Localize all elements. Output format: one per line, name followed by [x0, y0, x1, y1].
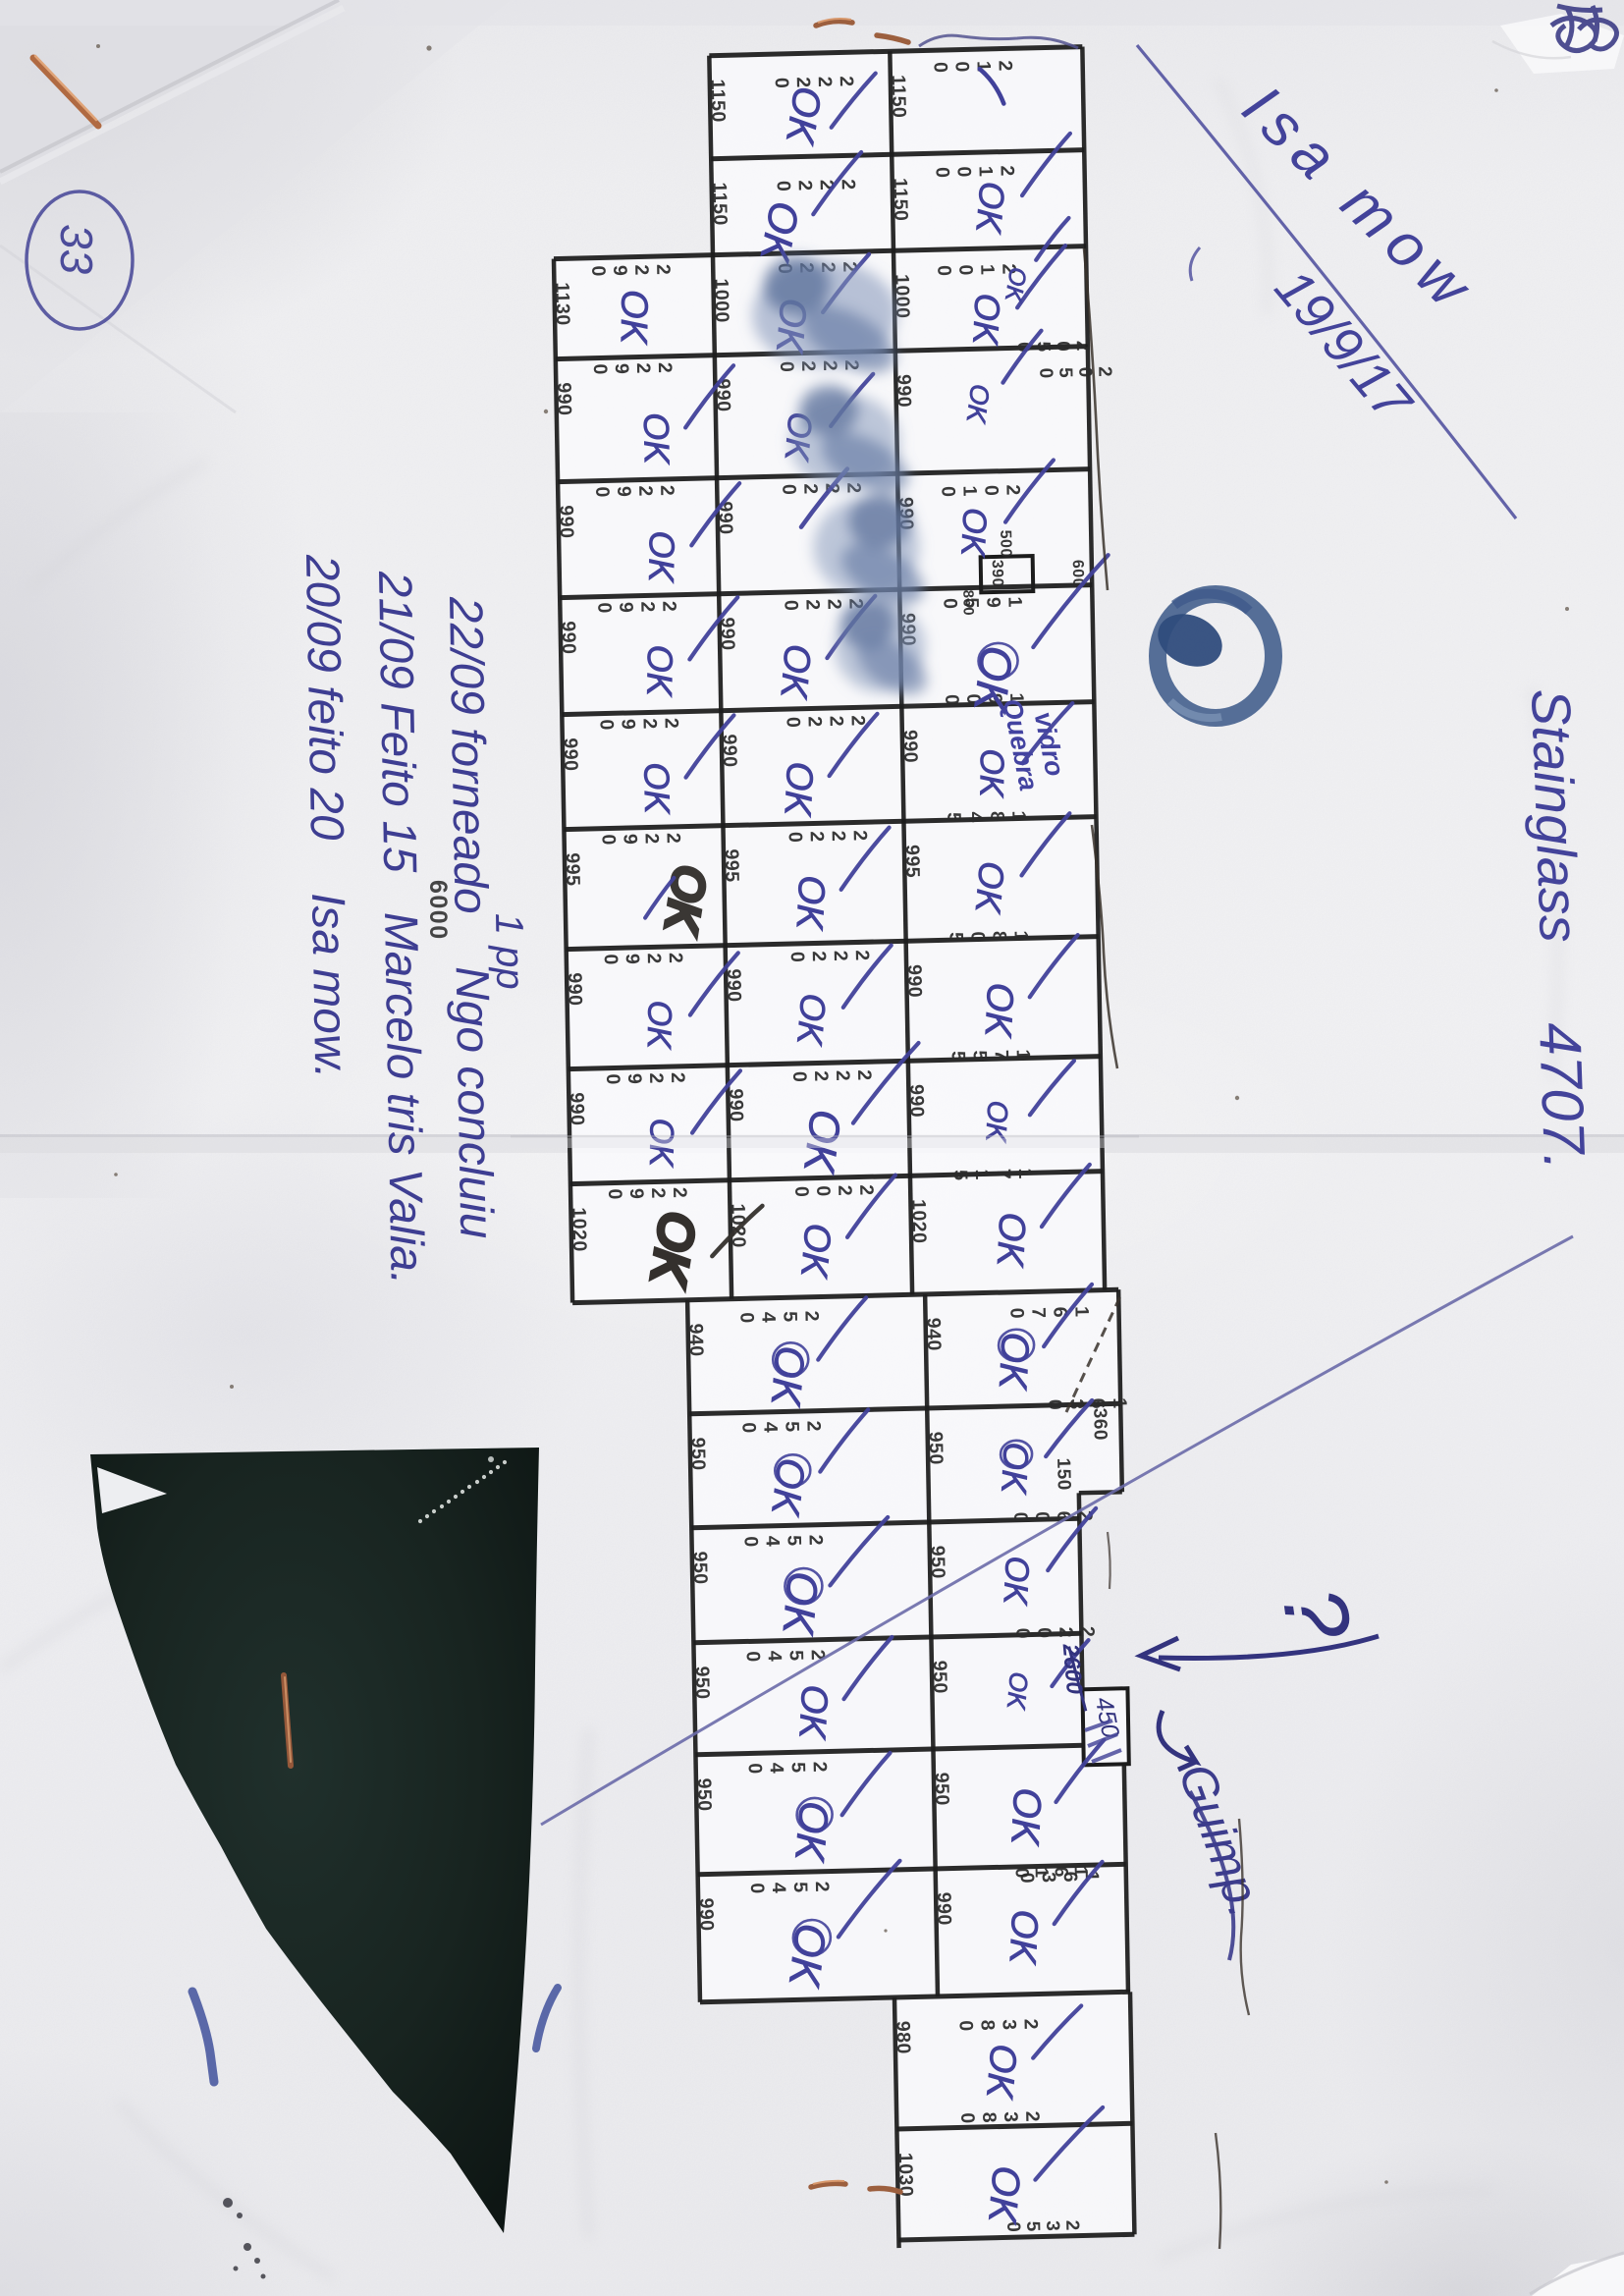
svg-text:0: 0	[956, 2112, 978, 2124]
svg-text:1: 1	[1109, 1397, 1130, 1409]
svg-text:5: 5	[1022, 2220, 1043, 2232]
svg-text:Stainglass: Stainglass	[1520, 687, 1591, 943]
svg-text:990: 990	[893, 374, 915, 409]
svg-text:2: 2	[855, 1184, 877, 1196]
svg-text:990: 990	[695, 1897, 718, 1932]
svg-text:OK: OK	[641, 530, 682, 583]
svg-text:1000: 1000	[710, 278, 732, 323]
svg-text:990: 990	[712, 378, 734, 412]
svg-text:1: 1	[1012, 1049, 1034, 1061]
svg-text:950: 950	[927, 1546, 949, 1580]
svg-text:0: 0	[954, 2020, 976, 2032]
svg-text:1: 1	[1070, 1866, 1091, 1878]
svg-text:0: 0	[773, 181, 794, 192]
svg-text:2: 2	[853, 1069, 875, 1081]
svg-text:0: 0	[930, 62, 951, 74]
svg-text:990: 990	[717, 617, 739, 651]
svg-text:5: 5	[779, 1311, 800, 1323]
svg-text:5: 5	[1055, 367, 1075, 379]
svg-text:9: 9	[615, 602, 636, 614]
svg-text:2: 2	[1001, 484, 1023, 496]
svg-text:3: 3	[1000, 2111, 1021, 2123]
svg-text:OK: OK	[792, 1222, 839, 1281]
svg-text:5: 5	[943, 812, 964, 824]
svg-text:0: 0	[1031, 1511, 1053, 1523]
svg-text:995: 995	[901, 845, 924, 879]
svg-text:2: 2	[802, 1420, 824, 1432]
svg-text:950: 950	[925, 1432, 947, 1466]
svg-text:3: 3	[998, 2019, 1019, 2031]
svg-text:1150: 1150	[888, 75, 910, 119]
svg-text:2: 2	[801, 599, 823, 611]
svg-text:8: 8	[976, 2020, 998, 2032]
svg-text:990: 990	[564, 972, 586, 1007]
svg-text:2: 2	[794, 180, 816, 191]
svg-text:2: 2	[663, 833, 684, 845]
svg-text:20/09 feito 20 Isa mow.: 20/09 feito 20 Isa mow.	[296, 553, 356, 1078]
svg-text:OK: OK	[640, 1001, 678, 1051]
svg-text:4: 4	[759, 1422, 781, 1434]
svg-text:OK: OK	[1001, 1671, 1034, 1713]
svg-text:2: 2	[995, 60, 1016, 72]
svg-text:0: 0	[931, 167, 952, 179]
svg-text:2: 2	[654, 362, 676, 374]
svg-text:0: 0	[744, 1763, 766, 1775]
svg-text:OK: OK	[636, 762, 677, 816]
svg-text:0: 0	[786, 952, 808, 963]
svg-text:OK: OK	[656, 862, 717, 937]
svg-text:0: 0	[812, 1185, 834, 1197]
svg-text:OK: OK	[787, 874, 832, 931]
svg-text:5: 5	[789, 1882, 811, 1893]
svg-text:OK: OK	[640, 1209, 706, 1289]
svg-text:7: 7	[991, 1050, 1012, 1061]
svg-text:0: 0	[587, 265, 609, 277]
svg-text:5: 5	[783, 1535, 804, 1547]
svg-text:1150: 1150	[709, 182, 731, 226]
svg-text:OK: OK	[636, 412, 677, 466]
svg-text:0: 0	[1009, 1511, 1031, 1523]
svg-text:3: 3	[1042, 2220, 1062, 2231]
svg-text:4: 4	[964, 811, 986, 823]
svg-text:0: 0	[1033, 1627, 1055, 1639]
svg-text:2: 2	[838, 179, 859, 191]
svg-text:OK: OK	[1002, 1787, 1049, 1848]
svg-text:150: 150	[1053, 1457, 1074, 1491]
svg-text:OK: OK	[996, 1556, 1036, 1607]
svg-text:2: 2	[638, 718, 660, 730]
svg-text:9: 9	[611, 363, 632, 375]
svg-text:8: 8	[978, 2112, 1000, 2124]
svg-text:990: 990	[715, 501, 737, 535]
svg-text:OK: OK	[776, 761, 820, 818]
svg-text:0: 0	[1044, 1399, 1065, 1411]
svg-text:33: 33	[51, 224, 102, 275]
svg-text:OK: OK	[790, 1684, 835, 1741]
svg-text:OK: OK	[968, 180, 1013, 236]
svg-text:0: 0	[785, 832, 806, 844]
svg-text:2: 2	[652, 264, 674, 276]
svg-text:2: 2	[814, 77, 836, 88]
svg-text:950: 950	[689, 1551, 712, 1585]
svg-text:2: 2	[832, 1070, 853, 1082]
svg-text:995: 995	[721, 848, 743, 883]
svg-text:2: 2	[636, 601, 658, 613]
svg-text:990: 990	[725, 1088, 747, 1122]
svg-text:0: 0	[780, 600, 801, 612]
svg-text:9: 9	[620, 834, 641, 846]
svg-text:4: 4	[757, 1312, 779, 1324]
svg-text:OK: OK	[977, 982, 1021, 1039]
svg-text:OK: OK	[1000, 266, 1031, 304]
svg-text:OK: OK	[613, 290, 655, 346]
svg-text:940: 940	[923, 1318, 946, 1352]
svg-text:1150: 1150	[707, 79, 730, 123]
svg-text:2600: 2600	[1058, 1642, 1088, 1696]
svg-text:2: 2	[808, 951, 830, 962]
svg-text:0: 0	[595, 719, 617, 731]
svg-text:990: 990	[723, 968, 745, 1003]
svg-text:0: 0	[739, 1536, 761, 1548]
svg-text:950: 950	[931, 1773, 953, 1807]
svg-text:980: 980	[892, 2021, 914, 2055]
svg-text:2: 2	[834, 1185, 855, 1197]
svg-text:2: 2	[799, 483, 821, 495]
svg-text:1: 1	[1003, 596, 1025, 608]
svg-text:1: 1	[971, 1169, 993, 1180]
svg-text:2: 2	[1061, 2220, 1082, 2231]
svg-text:950: 950	[687, 1437, 710, 1471]
svg-text:0: 0	[598, 834, 620, 846]
svg-text:OK: OK	[778, 83, 830, 148]
svg-text:2: 2	[667, 1072, 688, 1084]
svg-text:2: 2	[643, 953, 665, 964]
svg-text:990: 990	[903, 964, 926, 999]
svg-text:5: 5	[785, 1650, 807, 1662]
svg-text:1: 1	[974, 166, 996, 178]
svg-text:2: 2	[656, 485, 677, 497]
svg-text:2: 2	[1055, 1626, 1076, 1638]
svg-text:990: 990	[558, 621, 580, 655]
svg-text:0: 0	[954, 264, 976, 276]
svg-text:9: 9	[622, 954, 643, 965]
svg-text:OK: OK	[639, 644, 680, 697]
svg-text:0: 0	[602, 1073, 623, 1085]
svg-text:390: 390	[989, 560, 1006, 588]
svg-text:0: 0	[776, 361, 797, 373]
svg-text:OK: OK	[763, 1456, 813, 1520]
svg-text:4707.: 4707.	[1527, 1021, 1597, 1171]
svg-text:2: 2	[823, 599, 844, 611]
svg-text:2: 2	[632, 362, 654, 374]
svg-text:2: 2	[806, 831, 828, 843]
svg-text:4: 4	[768, 1883, 789, 1894]
svg-text:0: 0	[1053, 341, 1073, 352]
svg-text:2: 2	[641, 833, 663, 845]
svg-text:2: 2	[1019, 2018, 1041, 2030]
svg-text:0: 0	[593, 602, 615, 614]
svg-text:1020: 1020	[907, 1199, 930, 1244]
svg-text:2: 2	[660, 718, 681, 730]
svg-text:9: 9	[625, 1188, 647, 1200]
svg-text:9: 9	[982, 597, 1003, 609]
svg-text:2: 2	[645, 1072, 667, 1084]
svg-text:0: 0	[1011, 1868, 1032, 1879]
svg-text:2: 2	[665, 953, 686, 964]
svg-text:0: 0	[591, 486, 613, 498]
svg-text:OK: OK	[953, 507, 994, 558]
svg-text:OK: OK	[978, 2043, 1024, 2102]
svg-text:2: 2	[811, 1881, 833, 1892]
svg-text:OK: OK	[789, 992, 835, 1048]
svg-text:4: 4	[761, 1536, 783, 1548]
svg-text:1020: 1020	[568, 1207, 590, 1252]
svg-text:0: 0	[782, 717, 803, 729]
svg-text:6: 6	[1051, 1867, 1071, 1878]
svg-text:9: 9	[613, 486, 634, 498]
svg-text:OK: OK	[772, 642, 818, 701]
svg-text:0: 0	[951, 61, 973, 73]
svg-text:9: 9	[623, 1073, 645, 1085]
svg-text:860: 860	[959, 589, 976, 616]
svg-text:0: 0	[937, 486, 958, 498]
svg-text:OK: OK	[961, 383, 996, 425]
svg-text:0: 0	[966, 931, 988, 943]
svg-text:2: 2	[658, 601, 679, 613]
svg-text:1: 1	[1014, 1168, 1036, 1179]
svg-text:9: 9	[609, 265, 630, 277]
svg-text:995: 995	[562, 852, 584, 887]
svg-text:360: 360	[1089, 1408, 1110, 1442]
svg-text:0: 0	[737, 1422, 759, 1434]
svg-text:0: 0	[941, 694, 962, 706]
svg-text:5: 5	[947, 1051, 969, 1063]
svg-text:OK: OK	[972, 748, 1010, 798]
svg-text:1: 1	[958, 485, 980, 497]
svg-text:2: 2	[1072, 340, 1093, 351]
svg-text:2: 2	[849, 830, 871, 842]
svg-text:990: 990	[899, 730, 922, 764]
svg-text:2: 2	[630, 264, 652, 276]
svg-text:7: 7	[993, 1169, 1014, 1179]
svg-text:1: 1	[976, 264, 998, 276]
svg-text:2: 2	[1076, 1626, 1098, 1638]
svg-text:0: 0	[735, 1312, 757, 1324]
svg-text:0: 0	[742, 1651, 764, 1663]
svg-text:4: 4	[766, 1763, 787, 1775]
svg-text:5: 5	[969, 1050, 991, 1062]
svg-text:0: 0	[939, 598, 960, 610]
svg-text:2: 2	[804, 1534, 826, 1546]
svg-text:2: 2	[836, 76, 857, 87]
svg-text:5: 5	[945, 932, 966, 944]
svg-text:0: 0	[788, 1071, 810, 1083]
svg-text:2: 2	[1021, 2110, 1043, 2122]
svg-text:990: 990	[566, 1092, 588, 1126]
svg-text:0: 0	[952, 166, 974, 178]
svg-text:1: 1	[1009, 930, 1031, 942]
svg-text:0: 0	[1035, 367, 1056, 378]
svg-text:990: 990	[560, 738, 582, 772]
svg-text:7: 7	[1027, 1307, 1049, 1318]
svg-text:0: 0	[604, 1188, 625, 1200]
svg-text:2: 2	[851, 950, 873, 961]
svg-text:950: 950	[693, 1777, 716, 1812]
svg-text:2: 2	[996, 165, 1017, 177]
svg-text:500: 500	[997, 529, 1014, 558]
svg-text:2: 2	[800, 1310, 822, 1322]
svg-text:1 pp: 1 pp	[487, 912, 531, 990]
svg-text:2: 2	[669, 1187, 690, 1199]
svg-text:2: 2	[647, 1187, 669, 1199]
svg-text:2: 2	[825, 716, 846, 728]
svg-text:0: 0	[1005, 1307, 1027, 1319]
svg-text:990: 990	[719, 734, 741, 768]
svg-text:OK: OK	[989, 1212, 1033, 1269]
svg-text:940: 940	[685, 1323, 708, 1357]
svg-text:950: 950	[691, 1666, 714, 1700]
svg-text:1: 1	[1007, 810, 1029, 822]
svg-text:4: 4	[764, 1651, 785, 1663]
svg-text:2: 2	[803, 716, 825, 728]
svg-text:0: 0	[589, 363, 611, 375]
svg-text:5: 5	[1033, 341, 1054, 353]
svg-text:990: 990	[933, 1892, 955, 1927]
svg-text:1150: 1150	[890, 178, 912, 222]
svg-text:0: 0	[746, 1883, 768, 1894]
svg-text:0: 0	[933, 265, 954, 277]
svg-text:0: 0	[790, 1186, 812, 1198]
svg-text:OK: OK	[965, 293, 1008, 348]
svg-text:990: 990	[553, 382, 575, 416]
svg-text:OK: OK	[980, 2164, 1028, 2226]
svg-text:950: 950	[929, 1661, 951, 1695]
svg-text:5: 5	[787, 1762, 809, 1774]
svg-text:8: 8	[986, 811, 1007, 823]
svg-text:9: 9	[617, 719, 638, 731]
svg-text:0: 0	[600, 954, 622, 965]
svg-text:5: 5	[949, 1170, 971, 1181]
svg-text:0: 0	[778, 484, 799, 496]
svg-text:OK: OK	[1001, 1909, 1046, 1966]
svg-text:2: 2	[828, 831, 849, 843]
svg-text:0: 0	[1011, 1627, 1033, 1639]
svg-text:1: 1	[1031, 1867, 1052, 1879]
svg-text:2: 2	[1094, 366, 1114, 377]
svg-text:OK: OK	[968, 860, 1013, 916]
svg-text:2: 2	[810, 1070, 832, 1082]
svg-text:2: 2	[830, 951, 851, 962]
svg-text:8: 8	[988, 931, 1009, 943]
svg-text:0: 0	[980, 485, 1001, 497]
svg-text:5: 5	[781, 1421, 802, 1433]
svg-text:6000: 6000	[424, 880, 452, 941]
svg-text:2: 2	[634, 485, 656, 497]
svg-text:990: 990	[905, 1084, 928, 1119]
svg-text:1130: 1130	[551, 282, 573, 326]
svg-text:990: 990	[556, 505, 578, 539]
svg-text:2: 2	[809, 1761, 831, 1773]
